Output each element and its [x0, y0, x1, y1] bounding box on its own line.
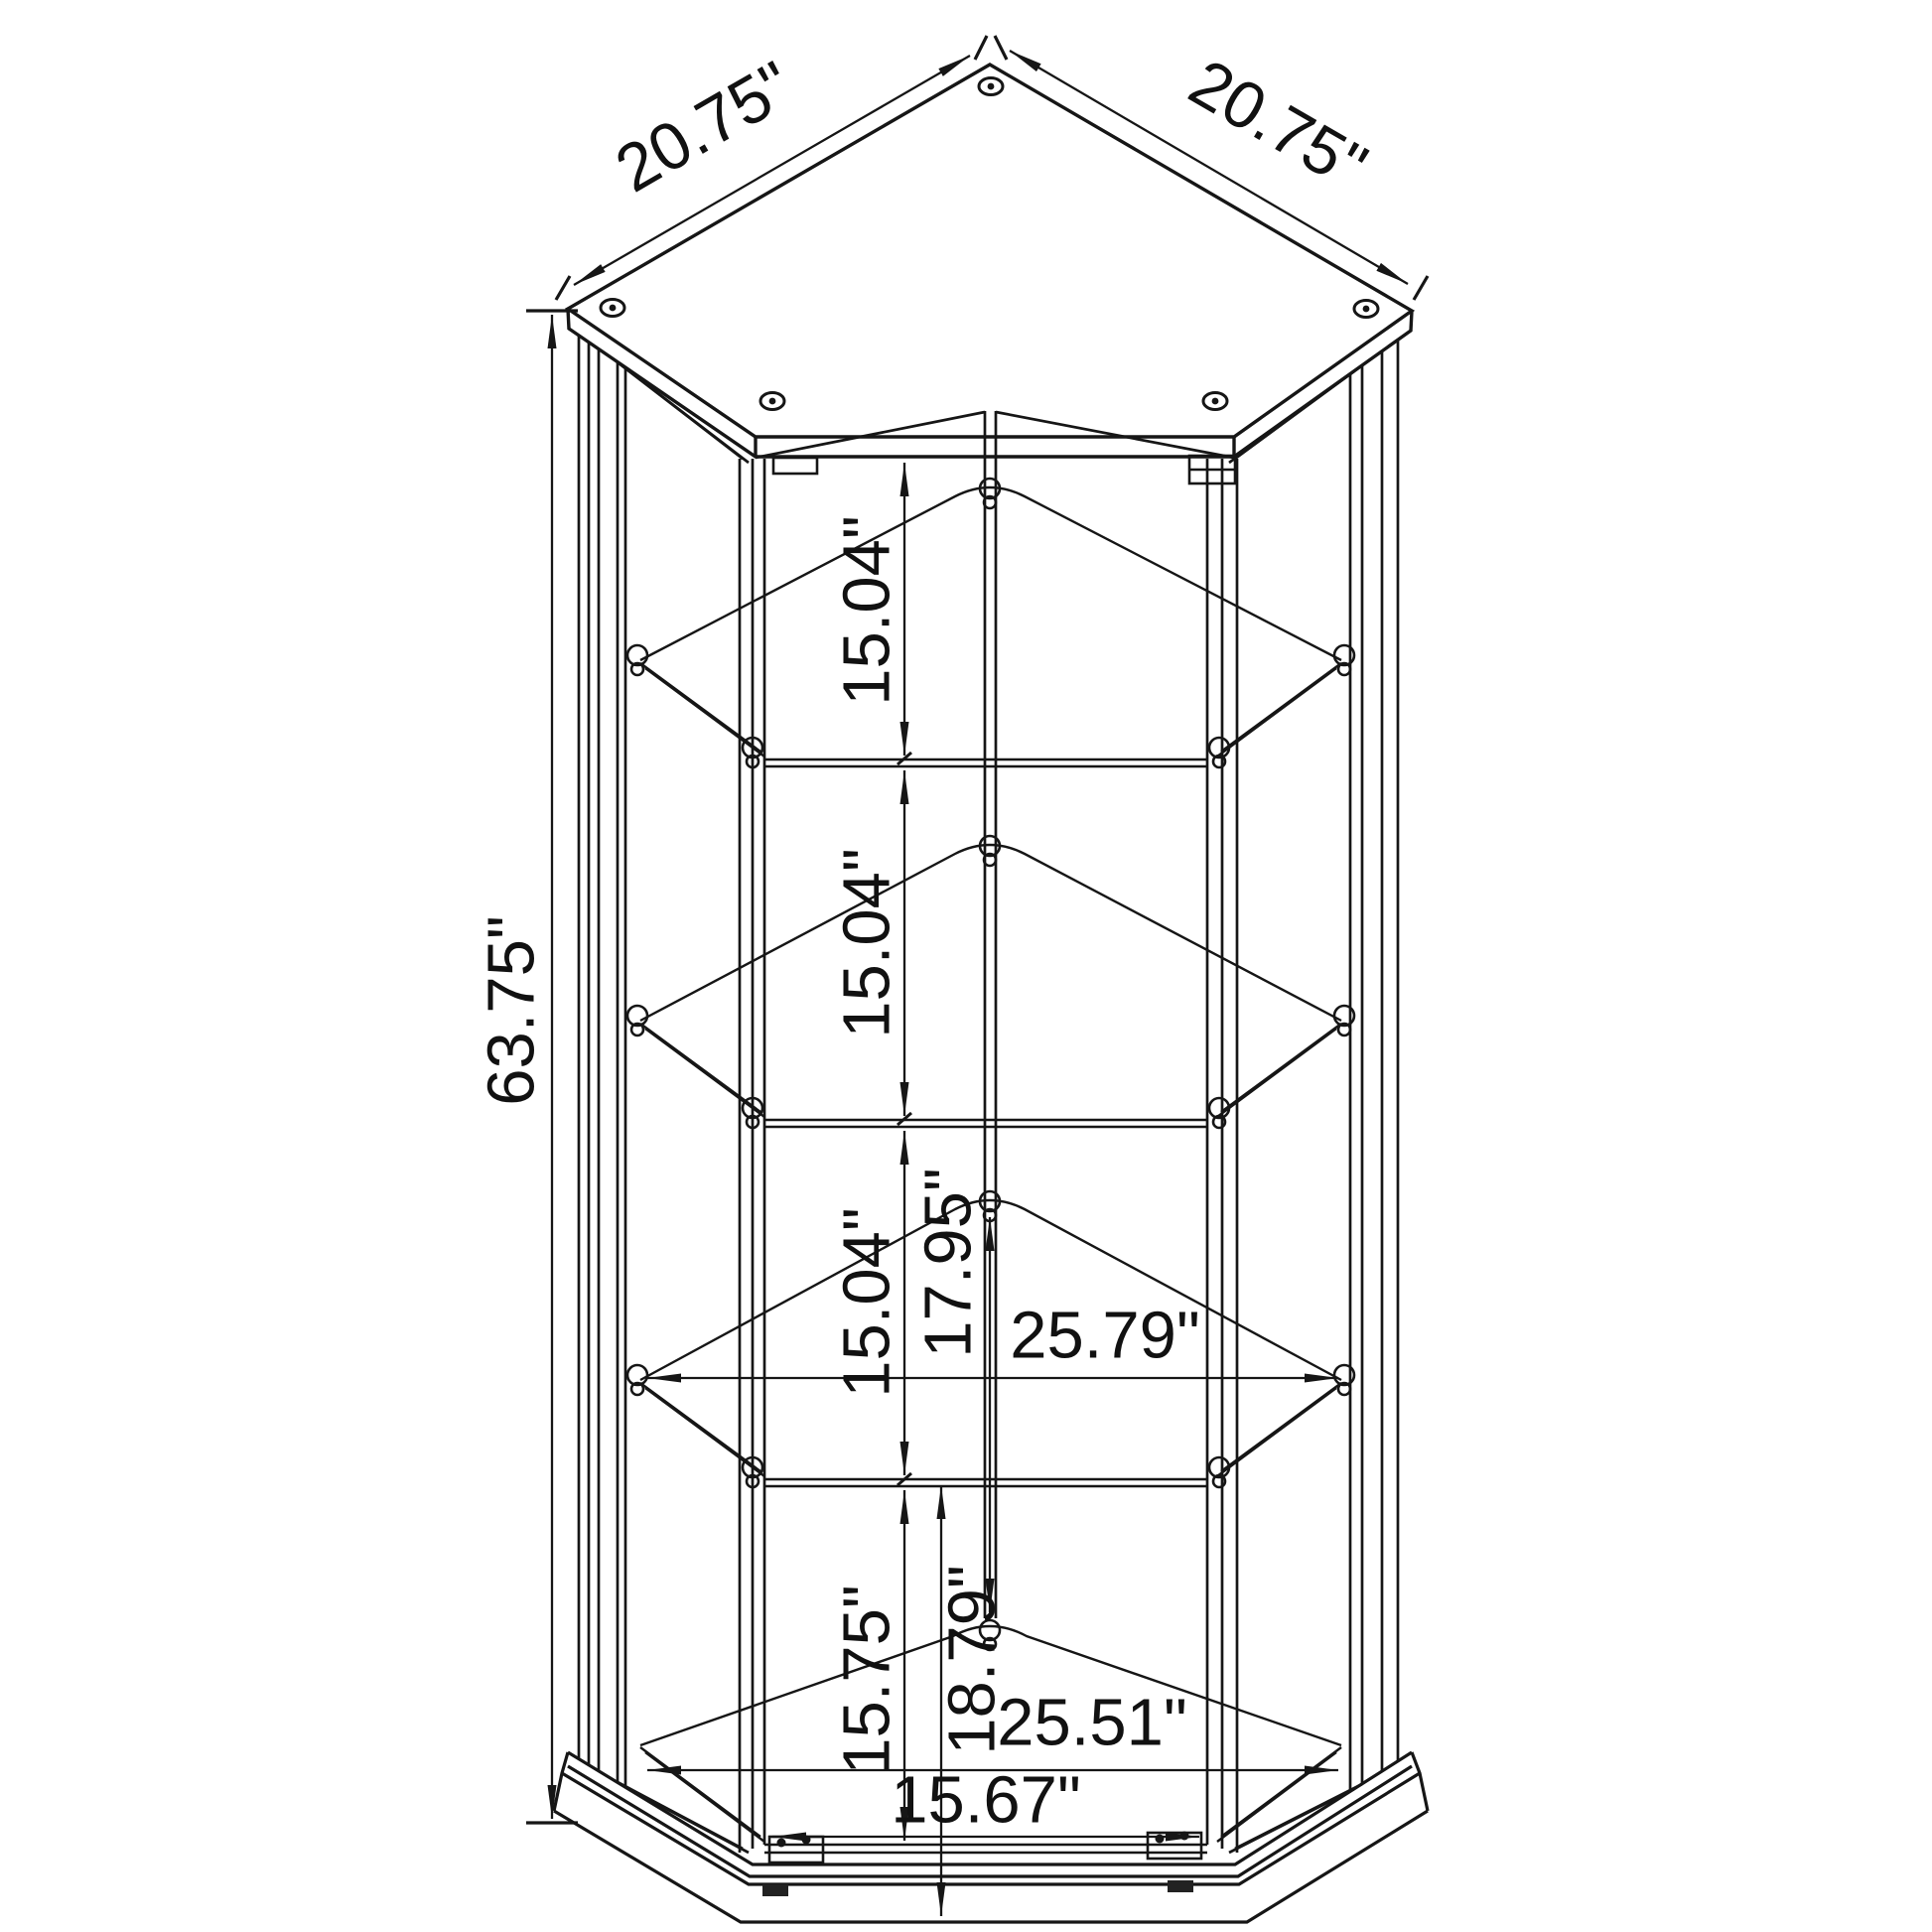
label-top-edge-left: 20.75"	[604, 48, 805, 207]
label-overall-height: 63.75"	[475, 915, 549, 1105]
label-shelf-spacing-2: 15.04"	[830, 848, 904, 1037]
label-shelf-width: 25.79"	[1010, 1299, 1199, 1373]
label-base-width: 25.51"	[997, 1686, 1186, 1760]
label-back-corner-section: 17.95"	[911, 1168, 986, 1357]
label-shelf-spacing-3: 15.04"	[830, 1207, 904, 1397]
diagram-canvas: 20.75" 20.75" 63.75" 15.04" 15.04" 15.04…	[0, 0, 1932, 1932]
label-shelf-spacing-1: 15.04"	[830, 515, 904, 705]
label-top-edge-right: 20.75"	[1177, 46, 1379, 206]
label-bottom-front-height: 15.75"	[830, 1585, 904, 1774]
label-door-width: 15.67"	[891, 1763, 1080, 1838]
dimension-labels: 20.75" 20.75" 63.75" 15.04" 15.04" 15.04…	[475, 46, 1379, 1838]
cabinet-dimension-diagram: 20.75" 20.75" 63.75" 15.04" 15.04" 15.04…	[0, 0, 1932, 1932]
